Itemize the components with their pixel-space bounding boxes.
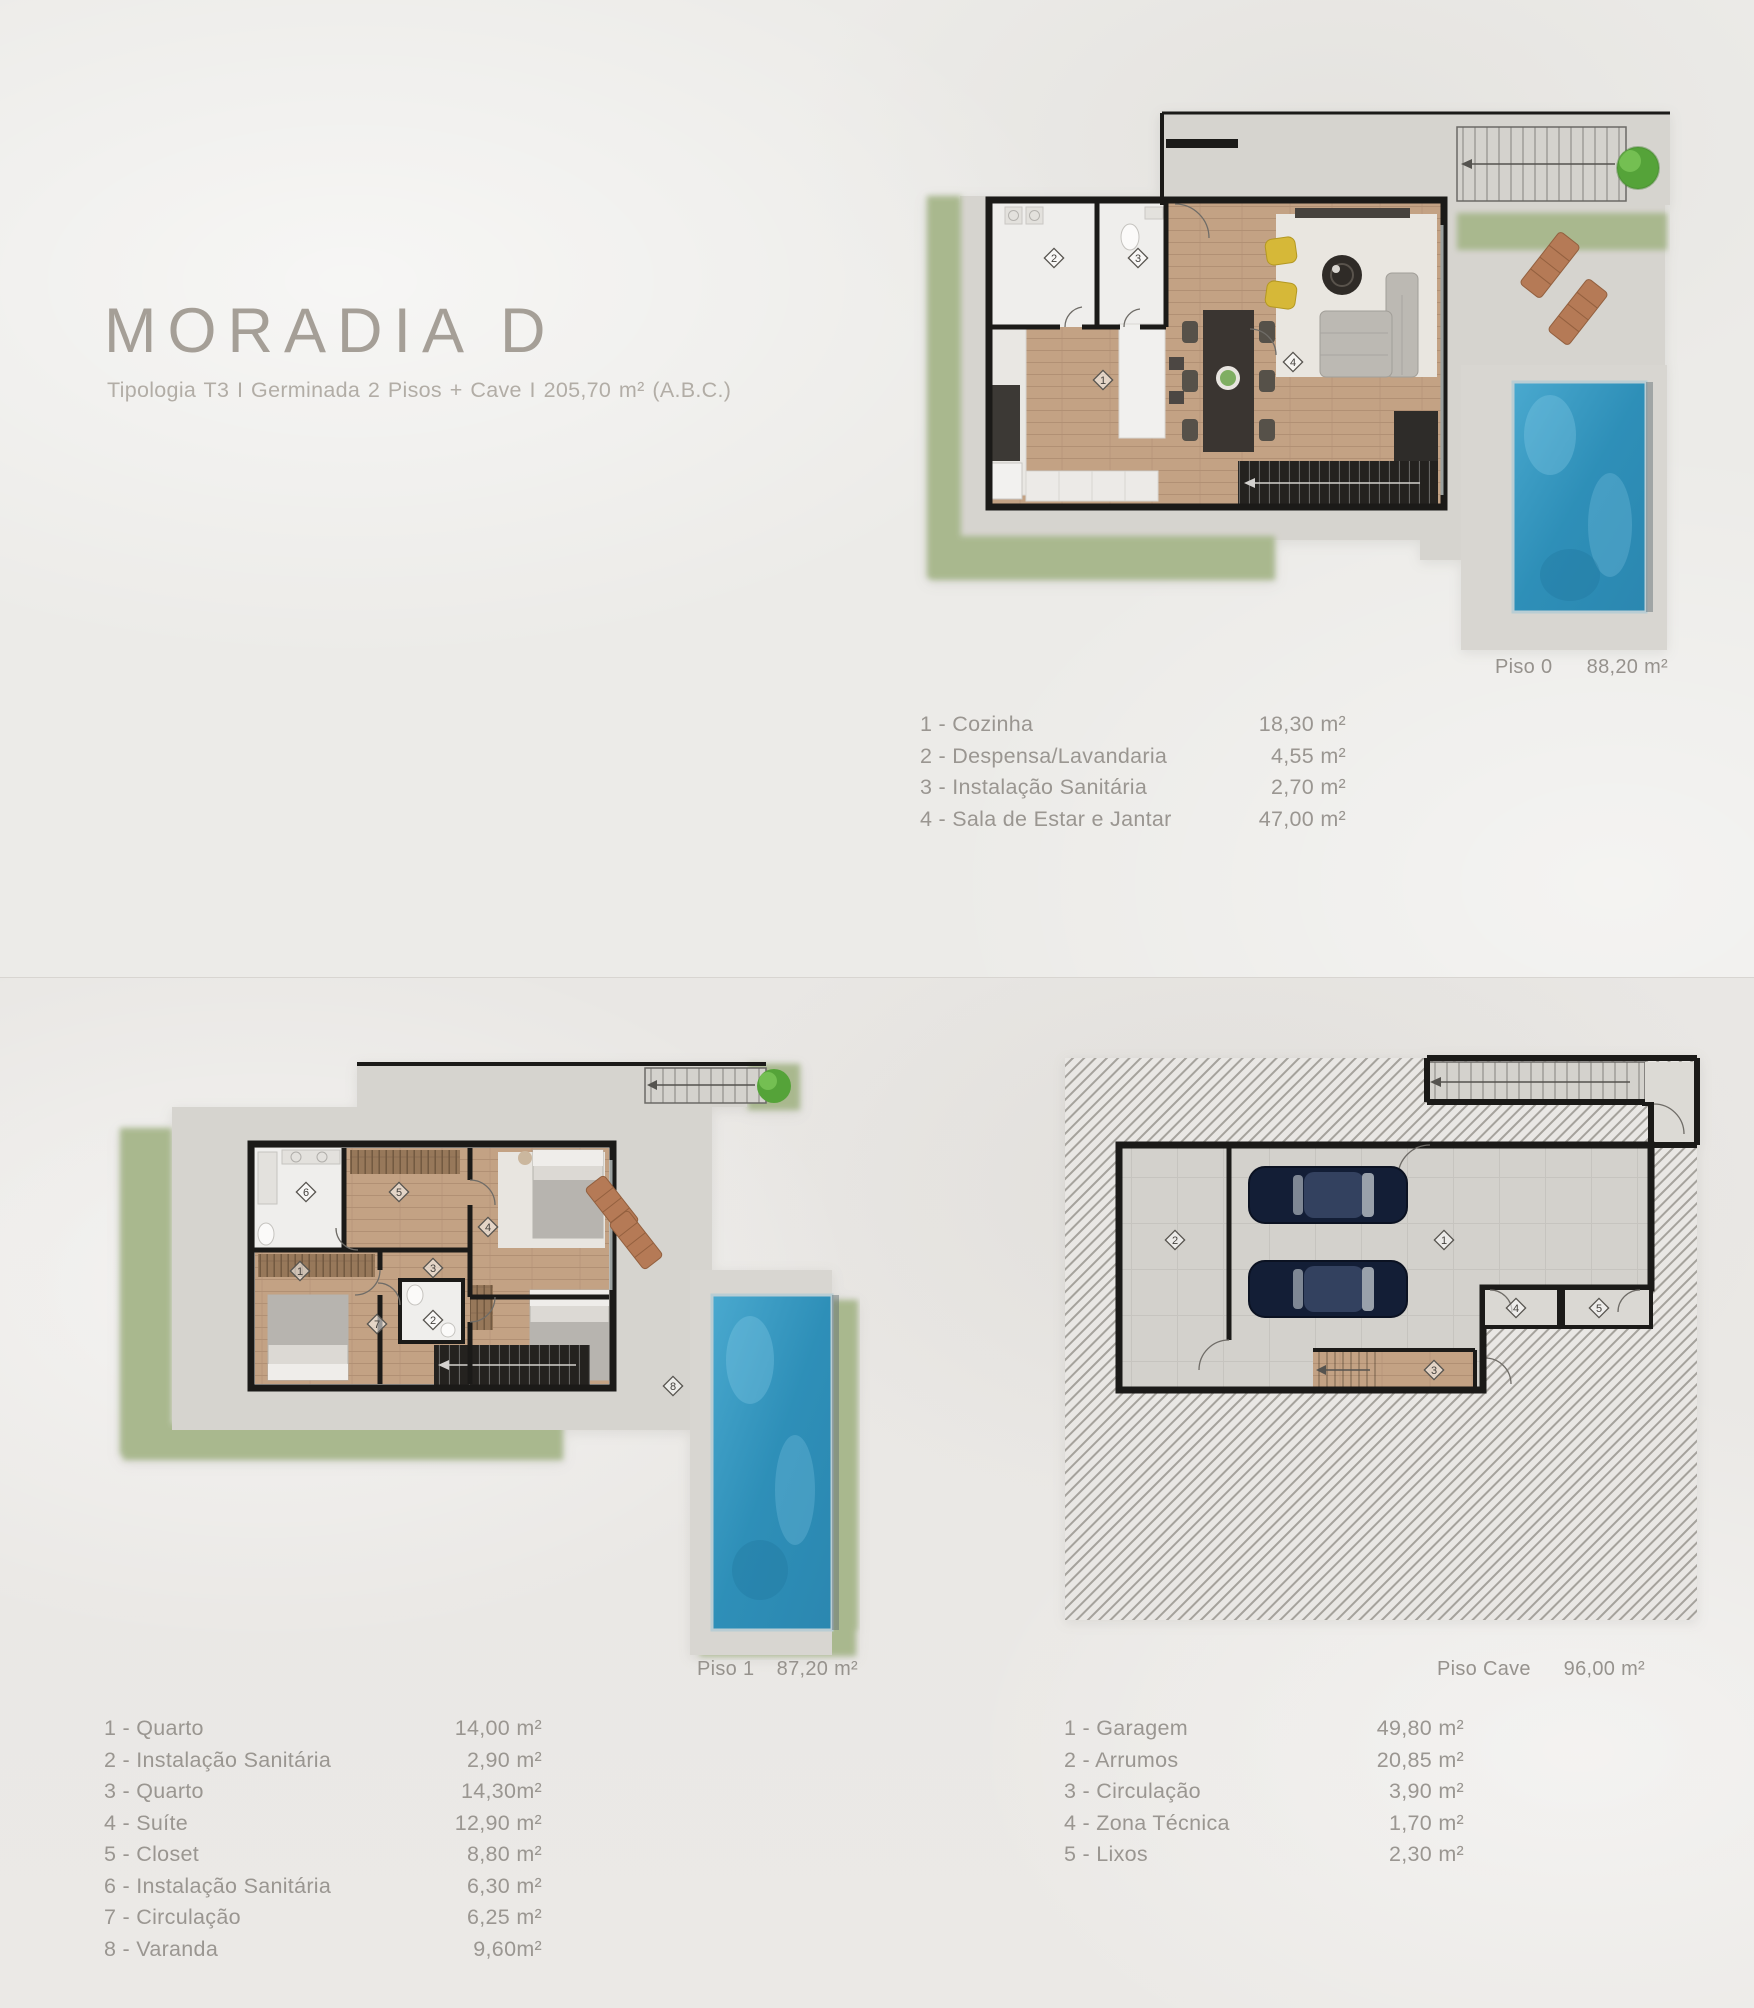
wardrobe — [258, 1254, 375, 1277]
legend-room-number: 2 — [1064, 1748, 1076, 1772]
legend-room-area: 9,60m² — [473, 1937, 542, 1962]
tv-console — [1295, 208, 1410, 218]
legend-room-area: 14,30m² — [461, 1779, 542, 1804]
floor-plan-piso-0: 1234 — [720, 75, 1670, 655]
legend-row: 4 - Zona Técnica 1,70 m² — [1064, 1811, 1464, 1836]
tree-icon — [757, 1069, 791, 1103]
piso1-pool — [712, 1295, 839, 1630]
legend-piso-1: 1 - Quarto 14,00 m² 2 - Instalação Sanit… — [104, 1716, 542, 1962]
room-number: 4 — [1290, 357, 1296, 369]
legend-room-number: 2 — [104, 1748, 116, 1772]
legend-room-name: Instalação Sanitária — [136, 1748, 331, 1772]
legend-separator: - — [116, 1874, 136, 1898]
floor-label-piso-cave: Piso Cave 96,00 m² — [1437, 1658, 1645, 1681]
floor-label-piso-1: Piso 1 87,20 m² — [697, 1658, 858, 1681]
legend-room-label: 3 - Quarto — [104, 1779, 204, 1804]
legend-room-name: Instalação Sanitária — [952, 775, 1147, 799]
legend-room-label: 8 - Varanda — [104, 1937, 218, 1962]
legend-room-area: 18,30 m² — [1259, 712, 1346, 737]
page-title: MORADIA D — [104, 298, 731, 364]
legend-room-label: 5 - Closet — [104, 1842, 199, 1867]
legend-room-name: Instalação Sanitária — [136, 1874, 331, 1898]
legend-room-name: Garagem — [1096, 1716, 1188, 1740]
legend-room-number: 3 — [1064, 1779, 1076, 1803]
legend-row: 2 - Instalação Sanitária 2,90 m² — [104, 1748, 542, 1773]
legend-room-area: 20,85 m² — [1377, 1748, 1464, 1773]
legend-room-label: 1 - Garagem — [1064, 1716, 1188, 1741]
legend-separator: - — [932, 744, 952, 768]
legend-separator: - — [116, 1779, 136, 1803]
legend-room-number: 4 — [104, 1811, 116, 1835]
legend-room-area: 14,00 m² — [455, 1716, 542, 1741]
legend-room-name: Sala de Estar e Jantar — [952, 807, 1171, 831]
legend-room-number: 5 — [1064, 1842, 1076, 1866]
wardrobe — [470, 1285, 493, 1330]
piso0-exterior-stairs — [1457, 127, 1626, 201]
legend-room-label: 4 - Suíte — [104, 1811, 188, 1836]
room-number: 2 — [1172, 1235, 1178, 1247]
room-number: 1 — [1100, 375, 1106, 387]
bed-quarto1 — [268, 1295, 348, 1380]
legend-room-number: 7 — [104, 1905, 116, 1929]
room-number: 4 — [1513, 1303, 1519, 1315]
legend-separator: - — [116, 1716, 136, 1740]
kitchen-island — [1119, 324, 1165, 438]
legend-room-label: 2 - Despensa/Lavandaria — [920, 744, 1167, 769]
legend-room-number: 1 — [104, 1716, 116, 1740]
legend-row: 1 - Cozinha 18,30 m² — [920, 712, 1346, 737]
legend-row: 4 - Sala de Estar e Jantar 47,00 m² — [920, 807, 1346, 832]
room-number: 3 — [1135, 253, 1141, 265]
legend-room-name: Lixos — [1096, 1842, 1148, 1866]
legend-room-label: 2 - Instalação Sanitária — [104, 1748, 331, 1773]
armchair — [1264, 236, 1297, 266]
legend-room-area: 1,70 m² — [1389, 1811, 1464, 1836]
legend-row: 5 - Closet 8,80 m² — [104, 1842, 542, 1867]
legend-room-number: 5 — [104, 1842, 116, 1866]
legend-room-number: 1 — [1064, 1716, 1076, 1740]
legend-room-name: Quarto — [136, 1716, 204, 1740]
legend-room-name: Arrumos — [1095, 1748, 1178, 1772]
room-number: 8 — [670, 1381, 676, 1393]
legend-separator: - — [1076, 1811, 1096, 1835]
sofa — [1320, 311, 1392, 377]
coffee-table — [1322, 255, 1362, 295]
legend-room-label: 4 - Zona Técnica — [1064, 1811, 1230, 1836]
legend-room-name: Suíte — [136, 1811, 188, 1835]
tree-icon — [1617, 147, 1659, 189]
legend-room-name: Cozinha — [952, 712, 1033, 736]
armchair — [1264, 280, 1297, 310]
floor-area: 96,00 m² — [1564, 1658, 1645, 1681]
legend-row: 2 - Arrumos 20,85 m² — [1064, 1748, 1464, 1773]
piso1-interior-stairs — [434, 1345, 590, 1385]
piso0-pool — [1513, 382, 1653, 612]
legend-room-name: Circulação — [136, 1905, 241, 1929]
kitchen-appliance — [988, 385, 1020, 461]
floor-area: 88,20 m² — [1587, 656, 1668, 679]
legend-room-area: 47,00 m² — [1259, 807, 1346, 832]
legend-room-label: 3 - Circulação — [1064, 1779, 1201, 1804]
legend-row: 5 - Lixos 2,30 m² — [1064, 1842, 1464, 1867]
room-number: 7 — [374, 1319, 380, 1331]
legend-room-label: 4 - Sala de Estar e Jantar — [920, 807, 1172, 832]
toilet — [1121, 224, 1139, 250]
legend-room-number: 6 — [104, 1874, 116, 1898]
legend-room-name: Despensa/Lavandaria — [952, 744, 1167, 768]
legend-room-label: 2 - Arrumos — [1064, 1748, 1178, 1773]
room-number: 4 — [485, 1222, 491, 1234]
legend-room-area: 3,90 m² — [1389, 1779, 1464, 1804]
room-number: 1 — [1441, 1235, 1447, 1247]
legend-room-name: Zona Técnica — [1096, 1811, 1229, 1835]
legend-row: 7 - Circulação 6,25 m² — [104, 1905, 542, 1930]
legend-row: 2 - Despensa/Lavandaria 4,55 m² — [920, 744, 1346, 769]
legend-piso-cave: 1 - Garagem 49,80 m² 2 - Arrumos 20,85 m… — [1064, 1716, 1464, 1867]
legend-room-number: 1 — [920, 712, 932, 736]
legend-separator: - — [116, 1905, 136, 1929]
legend-separator: - — [1076, 1842, 1096, 1866]
legend-room-name: Circulação — [1096, 1779, 1201, 1803]
floor-plan-piso-cave: 12345 — [1040, 1040, 1700, 1660]
legend-room-label: 5 - Lixos — [1064, 1842, 1148, 1867]
legend-room-area: 49,80 m² — [1377, 1716, 1464, 1741]
room-number: 5 — [1596, 1303, 1602, 1315]
room-number: 3 — [1431, 1365, 1437, 1377]
legend-room-number: 3 — [104, 1779, 116, 1803]
legend-row: 8 - Varanda 9,60m² — [104, 1937, 542, 1962]
room-number: 1 — [297, 1266, 303, 1278]
legend-separator: - — [932, 775, 952, 799]
legend-piso-0: 1 - Cozinha 18,30 m² 2 - Despensa/Lavand… — [920, 712, 1346, 832]
legend-row: 1 - Quarto 14,00 m² — [104, 1716, 542, 1741]
legend-room-name: Varanda — [136, 1937, 218, 1961]
wardrobe — [350, 1150, 460, 1174]
legend-separator: - — [932, 807, 952, 831]
floor-name: Piso Cave — [1437, 1658, 1531, 1681]
legend-room-name: Quarto — [136, 1779, 204, 1803]
legend-row: 4 - Suíte 12,90 m² — [104, 1811, 542, 1836]
legend-separator: - — [116, 1811, 136, 1835]
legend-room-label: 1 - Quarto — [104, 1716, 204, 1741]
legend-room-label: 7 - Circulação — [104, 1905, 241, 1930]
legend-room-number: 2 — [920, 744, 932, 768]
legend-room-label: 3 - Instalação Sanitária — [920, 775, 1147, 800]
legend-room-label: 1 - Cozinha — [920, 712, 1033, 737]
legend-row: 1 - Garagem 49,80 m² — [1064, 1716, 1464, 1741]
legend-separator: - — [932, 712, 952, 736]
legend-room-label: 6 - Instalação Sanitária — [104, 1874, 331, 1899]
legend-room-number: 3 — [920, 775, 932, 799]
legend-row: 3 - Circulação 3,90 m² — [1064, 1779, 1464, 1804]
legend-row: 3 - Quarto 14,30m² — [104, 1779, 542, 1804]
legend-room-area: 6,25 m² — [467, 1905, 542, 1930]
legend-row: 3 - Instalação Sanitária 2,70 m² — [920, 775, 1346, 800]
legend-row: 6 - Instalação Sanitária 6,30 m² — [104, 1874, 542, 1899]
legend-room-area: 2,90 m² — [467, 1748, 542, 1773]
toilet — [258, 1223, 274, 1245]
room-number: 3 — [430, 1263, 436, 1275]
legend-separator: - — [1076, 1716, 1096, 1740]
legend-separator: - — [1076, 1779, 1096, 1803]
legend-separator: - — [116, 1748, 136, 1772]
room-number: 5 — [396, 1187, 402, 1199]
floor-name: Piso 1 — [697, 1658, 754, 1681]
legend-separator: - — [116, 1842, 136, 1866]
legend-room-number: 4 — [920, 807, 932, 831]
legend-room-number: 8 — [104, 1937, 116, 1961]
legend-room-area: 2,70 m² — [1271, 775, 1346, 800]
room-number: 2 — [1051, 253, 1057, 265]
title-block: MORADIA D Tipologia T3 I Germinada 2 Pis… — [104, 298, 731, 403]
floor-name: Piso 0 — [1495, 656, 1552, 679]
legend-room-area: 8,80 m² — [467, 1842, 542, 1867]
floor-area: 87,20 m² — [777, 1658, 858, 1681]
legend-room-number: 4 — [1064, 1811, 1076, 1835]
floor-plan-piso-1: 12345678 — [100, 1040, 860, 1660]
page-subtitle: Tipologia T3 I Germinada 2 Pisos + Cave … — [107, 378, 731, 403]
room-number: 6 — [303, 1187, 309, 1199]
bathtub — [258, 1152, 277, 1204]
brochure-page: MORADIA D Tipologia T3 I Germinada 2 Pis… — [0, 0, 1754, 2008]
legend-separator: - — [116, 1937, 136, 1961]
floor-label-piso-0: Piso 0 88,20 m² — [1495, 656, 1668, 679]
legend-room-area: 2,30 m² — [1389, 1842, 1464, 1867]
legend-room-area: 4,55 m² — [1271, 744, 1346, 769]
legend-separator: - — [1076, 1748, 1095, 1772]
legend-room-name: Closet — [136, 1842, 199, 1866]
cave-interior-stairs — [1313, 1350, 1380, 1390]
legend-room-area: 12,90 m² — [455, 1811, 542, 1836]
legend-room-area: 6,30 m² — [467, 1874, 542, 1899]
room-number: 2 — [430, 1315, 436, 1327]
